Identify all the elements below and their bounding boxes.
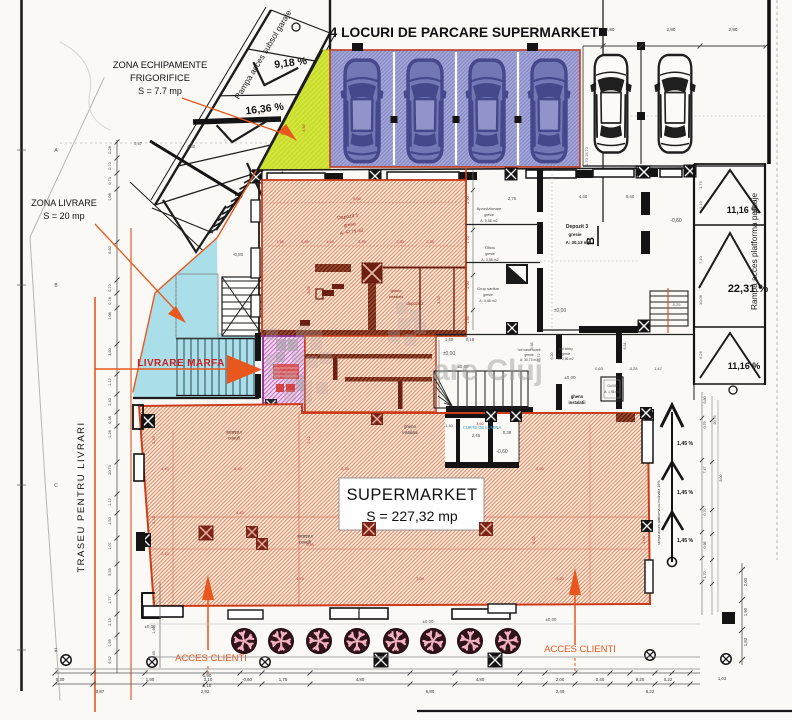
svg-text:6,38: 6,38 [530, 343, 534, 350]
svg-text:2,75: 2,75 [508, 196, 517, 201]
svg-text:7,47: 7,47 [703, 467, 707, 474]
svg-text:1,40: 1,40 [445, 337, 454, 342]
svg-text:6,34: 6,34 [623, 343, 627, 350]
svg-text:2,10: 2,10 [161, 552, 168, 556]
svg-text:±0,00: ±0,00 [546, 617, 558, 622]
svg-text:4,80: 4,80 [476, 677, 485, 682]
svg-text:ACCES CLIENTI: ACCES CLIENTI [544, 644, 616, 655]
svg-text:0,50: 0,50 [396, 240, 403, 244]
svg-text:gheno: gheno [228, 436, 240, 441]
svg-text:0,70: 0,70 [703, 509, 707, 516]
svg-text:1,90: 1,90 [203, 673, 212, 678]
svg-text:1,75: 1,75 [698, 180, 703, 189]
svg-text:4,80: 4,80 [187, 144, 196, 149]
svg-text:4,40: 4,40 [579, 194, 588, 199]
svg-text:0,73: 0,73 [108, 177, 112, 184]
svg-text:0,45: 0,45 [152, 651, 156, 658]
svg-text:20,76: 20,76 [713, 416, 717, 425]
svg-text:1,45: 1,45 [152, 596, 156, 603]
svg-text:hol lobby: hol lobby [559, 347, 573, 351]
svg-text:6,60: 6,60 [108, 246, 112, 253]
svg-text:2,92: 2,92 [201, 689, 210, 694]
svg-text:TRASEU PENTRU LIVRARI: TRASEU PENTRU LIVRARI [76, 421, 87, 572]
svg-text:-0,20: -0,20 [672, 303, 681, 307]
svg-text:instalatii: instalatii [297, 534, 312, 539]
svg-text:2,80: 2,80 [729, 27, 738, 32]
svg-text:C: C [54, 483, 58, 489]
svg-text:A: 5,98 m2: A: 5,98 m2 [480, 219, 497, 223]
svg-text:gresie: gresie [569, 232, 582, 237]
svg-text:±0,00: ±0,00 [145, 624, 157, 629]
svg-text:-0,80: -0,80 [233, 252, 244, 257]
svg-text:1,40: 1,40 [445, 424, 452, 428]
svg-text:ZONA LIVRARE: ZONA LIVRARE [31, 198, 97, 208]
svg-text:5,43: 5,43 [152, 516, 156, 523]
svg-text:instalatii: instalatii [226, 430, 241, 435]
svg-text:1,47: 1,47 [654, 366, 663, 371]
svg-text:±0,00: ±0,00 [423, 619, 435, 624]
svg-text:7,10: 7,10 [698, 255, 703, 264]
svg-text:gheno: gheno [390, 288, 402, 293]
svg-text:rampa acces platforma cu incli: rampa acces platforma cu inclinatie 16% [657, 480, 661, 545]
svg-text:0,60: 0,60 [595, 366, 604, 371]
svg-text:0,79: 0,79 [703, 422, 707, 429]
svg-text:1,95: 1,95 [108, 639, 112, 646]
svg-text:1,75: 1,75 [279, 677, 288, 682]
svg-text:0,80: 0,80 [703, 397, 707, 404]
svg-text:0,98: 0,98 [703, 542, 707, 549]
svg-text:10,06: 10,06 [698, 294, 703, 305]
svg-text:gheno: gheno [404, 424, 416, 429]
svg-text:instalatii: instalatii [569, 400, 586, 405]
svg-text:0,40: 0,40 [596, 677, 605, 682]
svg-text:4,75: 4,75 [296, 577, 303, 581]
svg-text:Oficiu: Oficiu [485, 245, 495, 250]
svg-text:9,20: 9,20 [556, 577, 563, 581]
svg-text:0,97: 0,97 [134, 141, 143, 146]
svg-text:1,90: 1,90 [146, 677, 155, 682]
svg-text:6,26: 6,26 [698, 350, 703, 359]
svg-text:gresie: gresie [484, 213, 494, 217]
svg-text:LIVRARE MARFA: LIVRARE MARFA [137, 358, 224, 369]
svg-text:0,18: 0,18 [466, 337, 475, 342]
svg-text:7,04: 7,04 [416, 577, 423, 581]
svg-text:S = 7.7 mp: S = 7.7 mp [138, 86, 182, 96]
svg-text:1,08: 1,08 [108, 312, 112, 319]
svg-text:16,70: 16,70 [585, 147, 589, 157]
svg-text:1,12: 1,12 [307, 436, 311, 443]
svg-text:instalatii: instalatii [402, 430, 417, 435]
svg-text:1,45 %: 1,45 % [677, 490, 694, 496]
svg-text:Gol lift: Gol lift [607, 384, 617, 388]
svg-text:1,40: 1,40 [326, 240, 333, 244]
svg-text:2,00: 2,00 [556, 677, 565, 682]
svg-text:1,08: 1,08 [108, 193, 112, 200]
svg-text:6,20: 6,20 [550, 353, 554, 360]
svg-text:2,80: 2,80 [667, 27, 676, 32]
svg-text:0,87: 0,87 [96, 689, 105, 694]
svg-text:8,00: 8,00 [719, 475, 723, 482]
svg-text:0,95: 0,95 [301, 240, 308, 244]
svg-text:5,55: 5,55 [108, 568, 112, 575]
svg-text:±0,00: ±0,00 [564, 375, 576, 380]
svg-text:2,13: 2,13 [108, 618, 112, 625]
svg-text:20,75: 20,75 [108, 465, 112, 475]
svg-text:2,40: 2,40 [556, 689, 565, 694]
svg-text:A: 3,98 m2: A: 3,98 m2 [481, 258, 498, 262]
svg-text:gresie: gresie [562, 352, 571, 356]
svg-text:3,60: 3,60 [108, 348, 112, 355]
svg-text:-0,28: -0,28 [628, 366, 638, 371]
svg-text:8,40: 8,40 [234, 467, 241, 471]
svg-text:2,90: 2,90 [536, 467, 543, 471]
svg-text:Depozit 3: Depozit 3 [566, 224, 588, 230]
svg-text:SUPERMARKET: SUPERMARKET [346, 486, 477, 504]
svg-text:A: 4,48 m2: A: 4,48 m2 [479, 299, 496, 303]
svg-text:2,00: 2,00 [743, 577, 748, 586]
svg-text:2,40: 2,40 [152, 436, 156, 443]
svg-text:B: B [585, 237, 597, 245]
svg-text:Aprovizionare: Aprovizionare [477, 206, 502, 211]
svg-text:1,28: 1,28 [108, 430, 112, 437]
svg-text:1,12: 1,12 [108, 378, 112, 385]
svg-text:11,16 %: 11,16 % [728, 361, 761, 371]
svg-text:A: 2,86 m2: A: 2,86 m2 [558, 357, 574, 361]
svg-text:instalatii: instalatii [389, 294, 404, 299]
svg-text:1,45 %: 1,45 % [677, 538, 694, 544]
svg-text:FRIGORIFICE: FRIGORIFICE [130, 73, 190, 83]
svg-text:2,10: 2,10 [203, 683, 212, 688]
svg-text:±0,00: ±0,00 [554, 308, 567, 314]
svg-text:ACCES CLIENTI: ACCES CLIENTI [175, 653, 247, 664]
svg-text:1,03: 1,03 [718, 676, 727, 681]
svg-text:6,02: 6,02 [532, 536, 536, 543]
svg-text:Rampa acces platforma parcaje: Rampa acces platforma parcaje [749, 192, 759, 310]
svg-text:A: 1,98 m2: A: 1,98 m2 [604, 390, 620, 394]
svg-text:3,95: 3,95 [358, 240, 365, 244]
svg-text:0,52: 0,52 [108, 656, 112, 663]
svg-text:3,60: 3,60 [476, 422, 483, 426]
svg-text:ZONA ECHIPAMENTE: ZONA ECHIPAMENTE [113, 60, 207, 70]
svg-text:1,70: 1,70 [585, 158, 589, 165]
svg-text:0,70: 0,70 [108, 162, 112, 169]
svg-text:2,45: 2,45 [472, 433, 481, 438]
svg-text:1,83: 1,83 [743, 637, 748, 646]
svg-text:S = 20 mp: S = 20 mp [43, 211, 84, 221]
svg-text:5,35: 5,35 [341, 467, 348, 471]
svg-text:4,40: 4,40 [161, 467, 168, 471]
svg-text:0,22: 0,22 [664, 677, 673, 682]
svg-text:gheno: gheno [299, 540, 311, 545]
svg-text:-0,60: -0,60 [242, 677, 253, 682]
svg-text:0,70: 0,70 [108, 284, 112, 291]
svg-text:4,50: 4,50 [302, 124, 306, 131]
svg-text:2,40: 2,40 [108, 398, 112, 405]
svg-text:1,70: 1,70 [703, 572, 707, 579]
svg-text:2,50: 2,50 [437, 296, 441, 303]
svg-text:1,12: 1,12 [108, 498, 112, 505]
svg-text:0,28: 0,28 [108, 146, 112, 153]
svg-text:1,50: 1,50 [108, 517, 112, 524]
svg-text:4 LOCURI DE PARCARE SUPERMARKE: 4 LOCURI DE PARCARE SUPERMARKET [330, 25, 599, 40]
svg-text:0,78: 0,78 [108, 297, 112, 304]
svg-text:0,38: 0,38 [108, 416, 112, 423]
svg-text:9,20: 9,20 [636, 677, 645, 682]
svg-text:1,45 %: 1,45 % [677, 441, 694, 447]
svg-text:6,80: 6,80 [426, 689, 435, 694]
svg-text:1,10: 1,10 [698, 200, 703, 209]
svg-text:4,80: 4,80 [356, 677, 365, 682]
svg-text:gresie: gresie [483, 293, 493, 297]
svg-text:0,30: 0,30 [56, 677, 65, 682]
svg-text:0,40: 0,40 [626, 194, 635, 199]
svg-text:-0,60: -0,60 [670, 218, 682, 224]
svg-text:0,38: 0,38 [503, 430, 512, 435]
svg-text:Grup sanitar: Grup sanitar [477, 286, 500, 291]
svg-text:6,60: 6,60 [353, 196, 362, 201]
svg-text:1,77: 1,77 [108, 596, 112, 603]
svg-text:4,40: 4,40 [236, 510, 245, 515]
svg-text:3,95: 3,95 [307, 286, 311, 293]
svg-text:-0,60: -0,60 [496, 449, 508, 455]
svg-text:gresie: gresie [485, 252, 495, 256]
svg-text:2,80: 2,80 [606, 27, 615, 32]
svg-text:2,35: 2,35 [426, 240, 433, 244]
svg-text:1,07: 1,07 [108, 542, 112, 549]
svg-text:6,22: 6,22 [646, 689, 655, 694]
svg-text:depozit 2: depozit 2 [407, 301, 425, 306]
svg-text:gheno: gheno [571, 394, 584, 399]
svg-text:1,45: 1,45 [276, 240, 283, 244]
svg-text:S = 227,32 mp: S = 227,32 mp [366, 508, 458, 524]
svg-text:2,08: 2,08 [642, 536, 646, 543]
svg-text:are Cluj: are Cluj [433, 354, 543, 387]
svg-text:1,90: 1,90 [743, 607, 748, 616]
